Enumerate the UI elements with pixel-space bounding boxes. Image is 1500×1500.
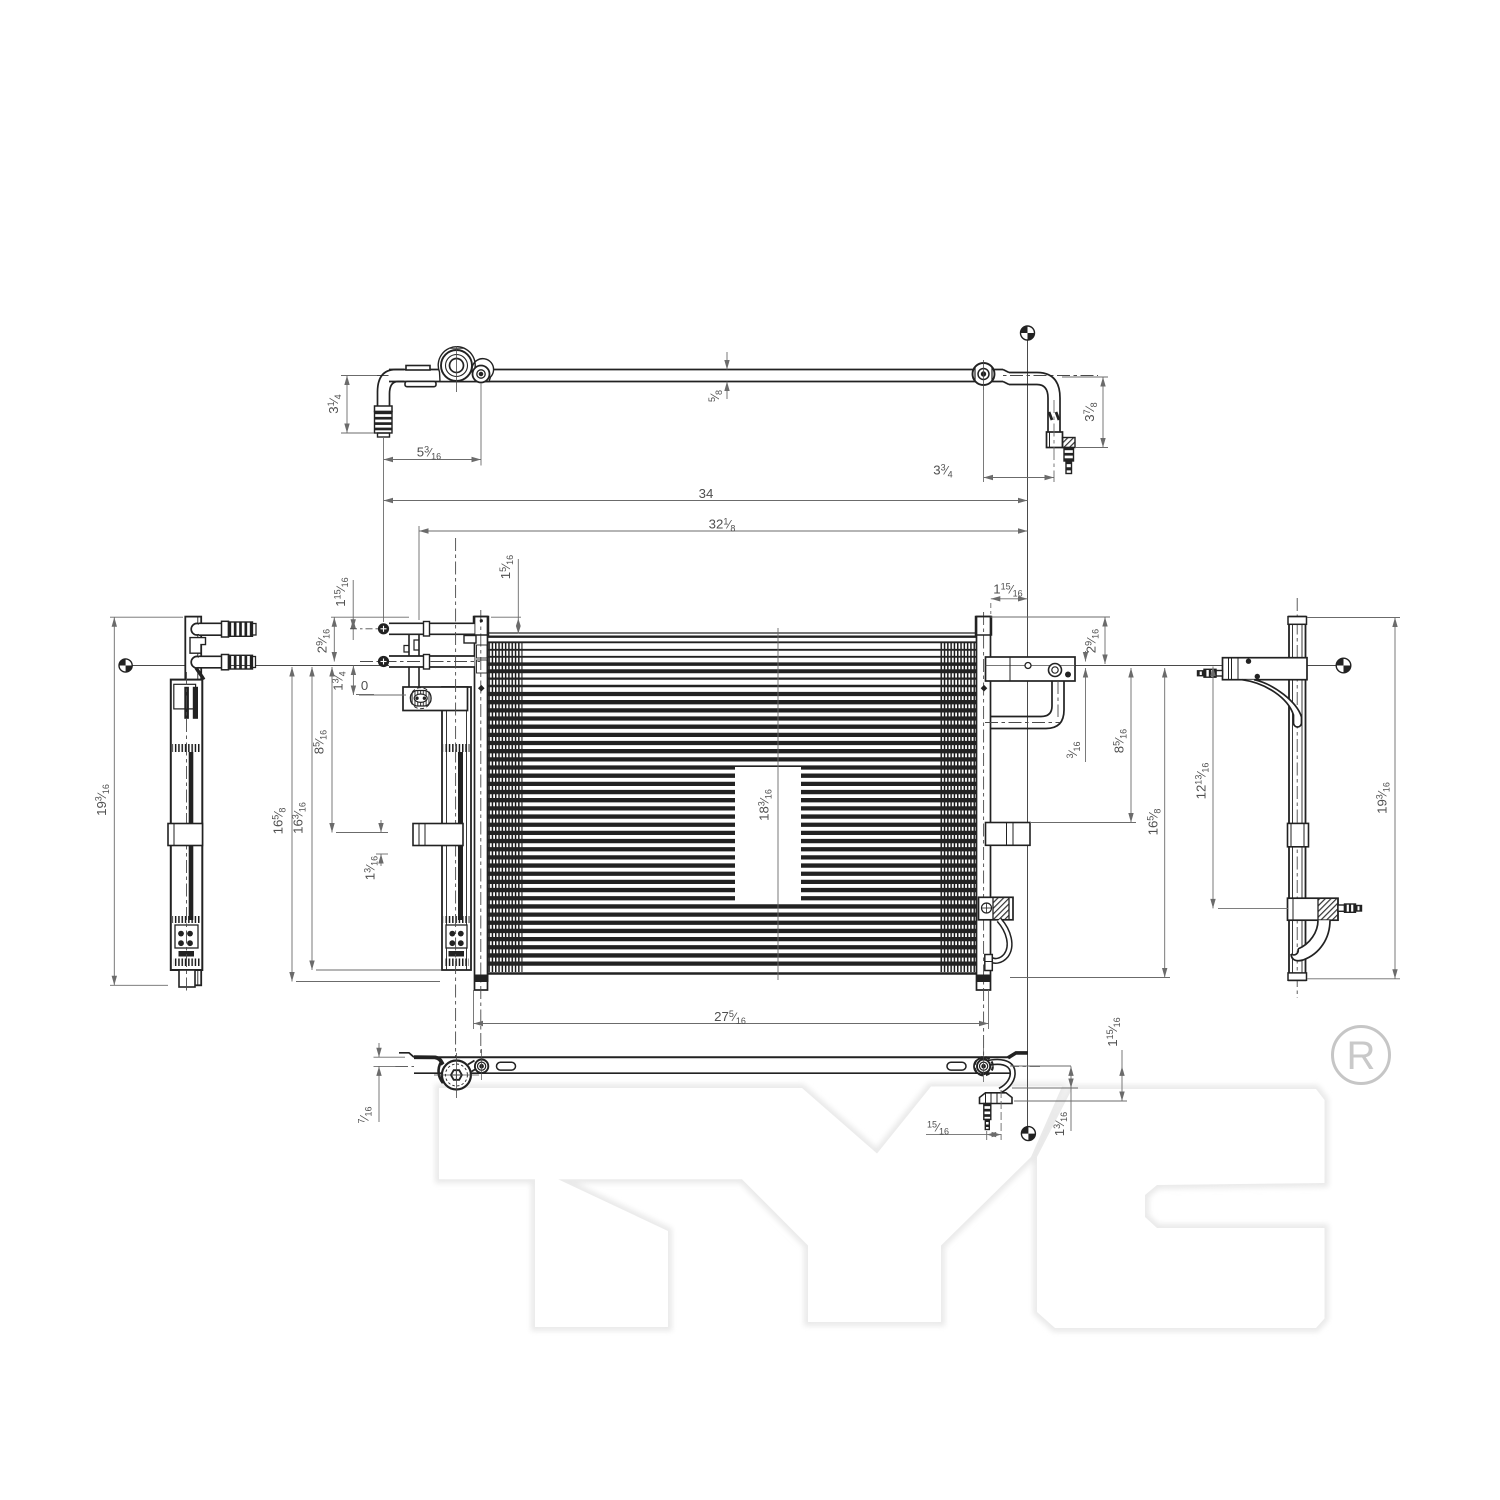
svg-text:0: 0 xyxy=(361,678,368,693)
svg-text:R: R xyxy=(1347,1034,1376,1078)
svg-text:34: 34 xyxy=(699,486,714,501)
